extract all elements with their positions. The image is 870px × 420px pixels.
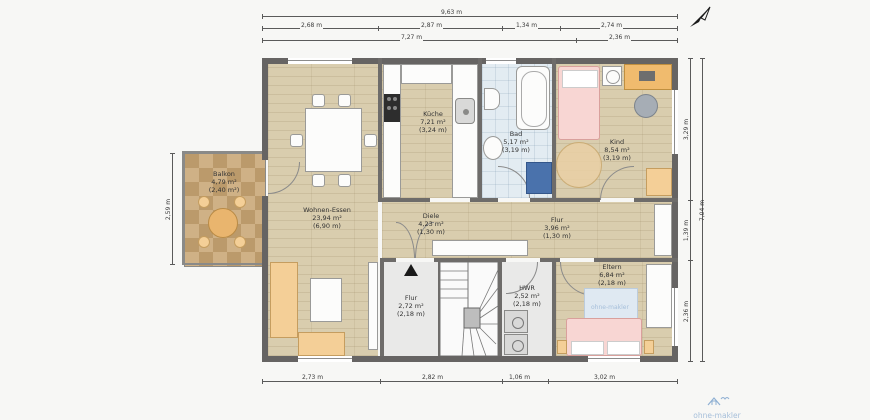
dim-label: 7,04 m: [699, 200, 706, 221]
wall: [540, 258, 560, 262]
room-label-flur: Flur3,96 m²(1,30 m): [524, 216, 590, 240]
dim-line-right-segments: [690, 58, 691, 362]
dim-label: 1,34 m: [515, 22, 538, 29]
dining-chair: [290, 134, 303, 147]
window: [672, 288, 678, 346]
dim-line-bottom: [262, 381, 678, 382]
floorplan: ohne-makler Balkon4,79 m²(2,40 m²) Wohne…: [180, 50, 690, 372]
pillow: [562, 70, 598, 88]
room-label-diele: Diele4,23 m²(1,30 m): [398, 212, 464, 236]
room-label-eltern: Eltern6,84 m²(2,18 m): [577, 263, 647, 287]
dim-label: 2,87 m: [420, 22, 443, 29]
window: [588, 356, 640, 362]
dim-label: 2,59 m: [165, 199, 172, 220]
dryer: [504, 334, 528, 355]
wall: [552, 262, 556, 356]
double-bed: [566, 318, 642, 356]
nightstand: [644, 340, 654, 354]
wall: [594, 258, 678, 262]
north-arrow-icon: [686, 5, 714, 33]
room-label-balkon: Balkon4,79 m²(2,40 m²): [192, 170, 256, 194]
room-label-kind: Kind8,54 m²(3,19 m): [582, 138, 652, 162]
dim-line-top-total: [262, 16, 678, 17]
window: [486, 58, 516, 64]
staircase: [440, 262, 498, 356]
dim-label: 1,06 m: [508, 374, 531, 381]
brand-logo: ohne-makler: [682, 392, 752, 420]
office-chair: [634, 94, 658, 118]
watermark: ohne-makler: [584, 304, 636, 312]
wall: [378, 58, 382, 202]
dim-label: 2,74 m: [600, 22, 623, 29]
room-label-bad: Bad5,17 m²(3,19 m): [488, 130, 544, 154]
house-icon: [704, 395, 730, 407]
desk: [624, 64, 672, 90]
pillow: [571, 341, 604, 355]
dining-table: [305, 108, 362, 172]
wall: [262, 58, 268, 160]
room-label-kueche: Küche7,21 m²(3,24 m): [398, 110, 468, 134]
tv-board: [368, 262, 378, 350]
window: [672, 90, 678, 154]
wall: [470, 198, 498, 202]
washing-machine: [504, 310, 528, 333]
balcony-table: [208, 208, 238, 238]
wall: [478, 58, 482, 202]
coffee-table: [310, 278, 342, 322]
floorplan-canvas: 9,63 m 2,68 m 2,87 m 1,34 m 2,74 m 7,27 …: [0, 0, 870, 420]
wall: [384, 258, 396, 262]
wardrobe: [646, 168, 672, 196]
dim-label: 2,36 m: [608, 34, 631, 41]
corner-sofa: [270, 262, 298, 338]
balcony-chair: [234, 236, 246, 248]
dim-label: 2,68 m: [300, 22, 323, 29]
wall: [262, 196, 268, 362]
room-label-hwr: HWR2,52 m²(2,18 m): [502, 284, 552, 308]
dim-label-top-total: 9,63 m: [440, 9, 463, 16]
brand-text: ohne-makler: [682, 411, 752, 420]
wall: [552, 58, 556, 202]
dim-label: 2,73 m: [301, 374, 324, 381]
dim-label: 3,02 m: [593, 374, 616, 381]
ceiling-lamp-icon: [602, 66, 622, 86]
wall: [498, 262, 502, 356]
dim-line-left: [172, 153, 173, 265]
bed-kids: [558, 66, 600, 140]
wardrobe: [646, 264, 672, 328]
room-label-wohnen: Wohnen-Essen23,94 m²(6,90 m): [277, 206, 377, 230]
nightstand: [557, 340, 567, 354]
wall: [380, 258, 384, 356]
dining-chair: [312, 94, 325, 107]
pillow: [607, 341, 640, 355]
room-label-treppe: Flur2,72 m²(2,18 m): [385, 294, 437, 318]
balcony-chair: [234, 196, 246, 208]
balcony-chair: [198, 236, 210, 248]
wall: [530, 198, 600, 202]
balcony-chair: [198, 196, 210, 208]
toilet: [484, 88, 500, 110]
window: [288, 58, 352, 64]
shower: [526, 162, 552, 194]
up-arrow-icon: [404, 264, 418, 276]
dining-chair: [364, 134, 377, 147]
hall-cabinet: [654, 204, 672, 256]
wall: [378, 198, 430, 202]
window: [298, 356, 352, 362]
bathtub: [516, 66, 550, 130]
dining-chair: [338, 174, 351, 187]
dim-label: 2,82 m: [421, 374, 444, 381]
wall: [634, 198, 678, 202]
sideboard: [432, 240, 528, 256]
corner-sofa: [298, 332, 345, 356]
dining-chair: [338, 94, 351, 107]
dining-chair: [312, 174, 325, 187]
dim-label: 7,27 m: [400, 34, 423, 41]
kitchen-counter: [401, 64, 452, 84]
